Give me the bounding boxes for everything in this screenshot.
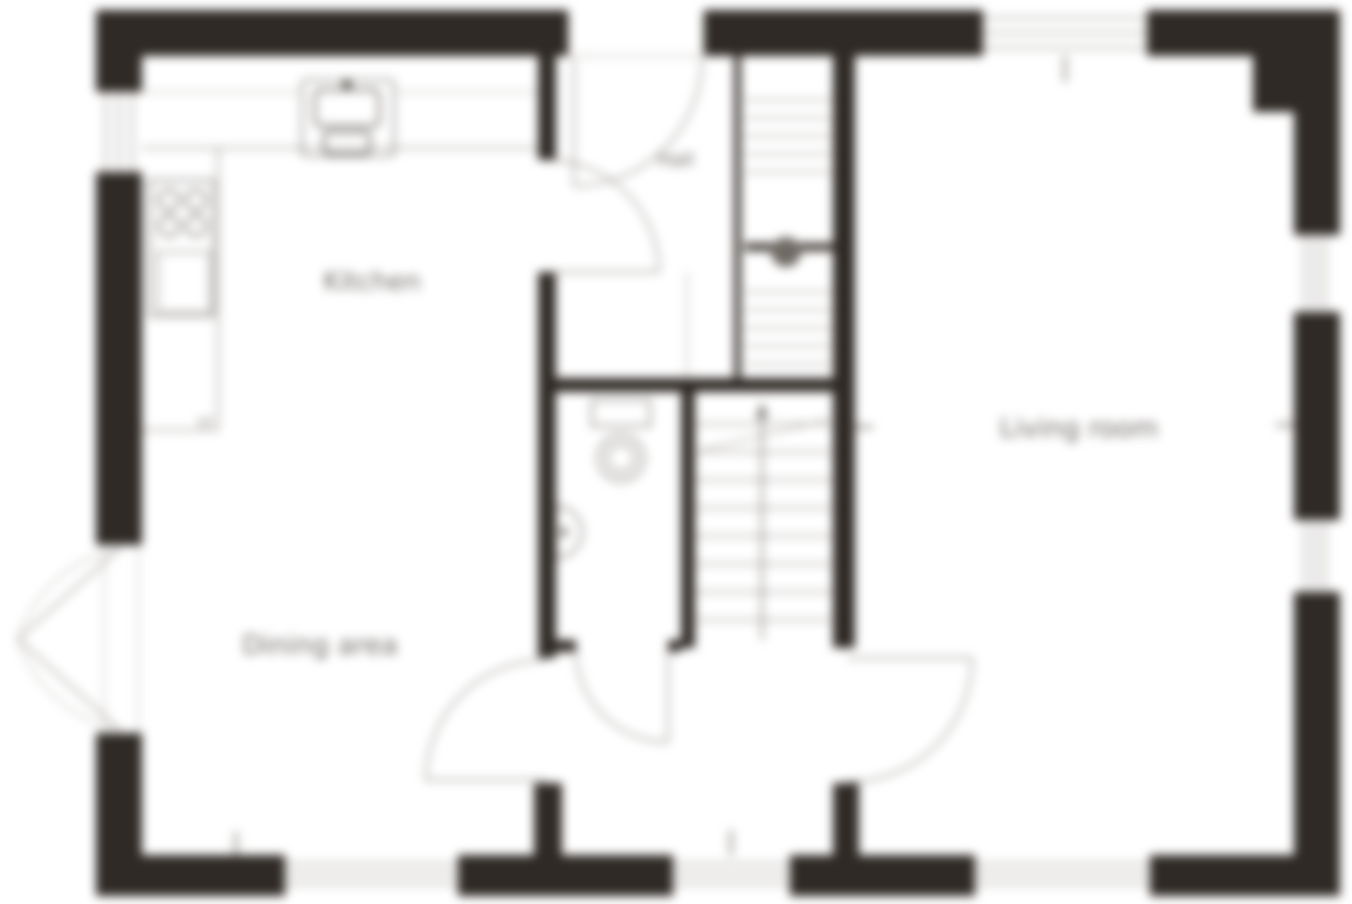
floor-plan: Kitchen Dining area Living room Hall f/f <box>0 0 1352 904</box>
wall-wc-stairs-divider <box>681 392 695 648</box>
kitchen-side-window <box>96 92 142 172</box>
living-room-right-window-lower <box>1294 520 1340 592</box>
staircase-up <box>697 402 831 640</box>
doors <box>18 12 972 782</box>
floor-plan-blur-layer: Kitchen Dining area Living room Hall f/f <box>0 0 1352 904</box>
wall-top-left <box>96 10 568 56</box>
wall-living-room <box>833 56 855 648</box>
living-room-door <box>848 658 972 782</box>
dining-area-label: Dining area <box>242 630 398 661</box>
dining-window <box>285 855 458 896</box>
wall-left-lower <box>96 733 142 896</box>
oven <box>158 252 210 312</box>
wall-wc-south-east <box>668 640 681 652</box>
kitchen-fixtures <box>142 79 538 430</box>
wall-top-middle <box>704 10 983 56</box>
worktop <box>142 92 538 430</box>
hob <box>150 180 214 316</box>
wall-bottom-middle-right <box>790 855 975 896</box>
hall-label: Hall <box>658 149 695 171</box>
inner-hall-window <box>673 855 790 896</box>
stair-treads <box>697 424 831 620</box>
exterior-walls <box>96 10 1340 896</box>
wall-kitchen-hall-upper <box>538 56 556 160</box>
windows <box>96 12 1340 896</box>
wall-hall-wc-stairs <box>538 378 855 392</box>
french-door-frame <box>104 545 138 733</box>
wall-bottom-right <box>1150 855 1340 896</box>
kitchen-door <box>547 160 659 272</box>
wall-store-divider <box>734 56 741 378</box>
wall-right-middle <box>1294 312 1340 520</box>
floor-plan-image: Kitchen Dining area Living room Hall f/f <box>0 0 1352 904</box>
stair-up-arrow-icon <box>756 402 768 418</box>
wall-left-middle <box>96 172 142 545</box>
dining-door <box>426 660 546 780</box>
living-room-right-window-upper <box>1294 235 1340 312</box>
hot-water-cylinder-icon <box>771 237 801 267</box>
toilet-icon <box>592 400 650 481</box>
kitchen-label: Kitchen <box>323 267 421 297</box>
interior-walls <box>534 56 859 855</box>
store-shelves <box>745 100 831 364</box>
wall-kitchen-hall-lower <box>538 272 556 658</box>
fridge-freezer-label: f/f <box>198 416 214 432</box>
wall-right-lower <box>1294 592 1340 896</box>
basin-icon <box>556 506 582 558</box>
living-room-label: Living room <box>1000 413 1159 444</box>
wall-wc-south-west <box>556 640 576 652</box>
wc-fixtures <box>556 400 650 558</box>
wall-stub-dining-door <box>534 783 562 855</box>
wall-left-upper <box>96 10 142 92</box>
radiator-marks <box>236 56 1294 855</box>
wall-bottom-middle-left <box>458 855 673 896</box>
wc-door <box>576 650 668 742</box>
living-room-top-window <box>983 12 1147 54</box>
tap-icon <box>342 79 352 89</box>
wall-right-upper <box>1294 10 1340 235</box>
living-room-bottom-window <box>975 855 1150 896</box>
sink <box>302 79 394 156</box>
store-cupboard <box>745 100 833 364</box>
wall-stub-living-door <box>833 783 859 855</box>
room-labels: Kitchen Dining area Living room Hall f/f <box>198 149 1159 661</box>
